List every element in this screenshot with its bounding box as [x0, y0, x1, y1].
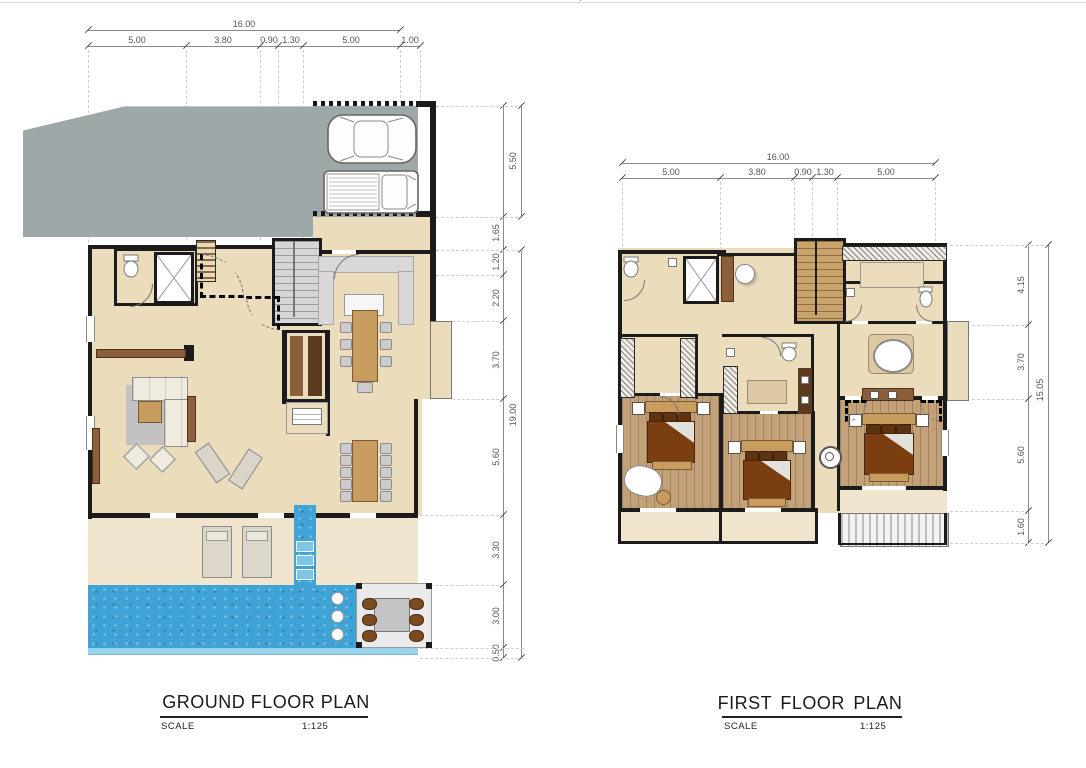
car-sedan-icon — [326, 112, 418, 166]
dimension-label: 5.00 — [662, 167, 680, 177]
dimension-label: 15.05 — [1035, 379, 1045, 402]
coffee-table — [138, 401, 162, 423]
elevator — [683, 256, 719, 304]
extension-line — [400, 50, 401, 103]
dimension-label: 5.00 — [128, 35, 146, 45]
title-underline — [722, 716, 902, 718]
deck-rail — [840, 543, 947, 545]
pool-step — [296, 569, 314, 580]
deck-post — [426, 583, 432, 589]
sun-lounger — [242, 526, 272, 578]
nightstand — [728, 441, 741, 454]
deck-post — [356, 583, 362, 589]
dimension-label: 0.50 — [491, 644, 501, 662]
stepping-stone — [331, 628, 344, 641]
sink — [801, 376, 809, 384]
wardrobe — [680, 338, 696, 398]
dimension-label: 1.60 — [1016, 518, 1026, 536]
car-pickup-icon — [322, 168, 420, 216]
plan-title: GROUND FLOOR PLAN — [162, 692, 370, 713]
dimension-label: 0.90 — [794, 167, 812, 177]
elevator — [154, 252, 194, 304]
scale-label: SCALE — [724, 721, 758, 732]
door-opening — [150, 513, 176, 518]
sofa — [132, 377, 188, 401]
pool-step — [296, 541, 314, 552]
pantry-cabinet — [290, 336, 303, 396]
dimension-label: 16.00 — [233, 19, 256, 29]
carport-edge-hatch — [313, 101, 432, 106]
bed — [864, 433, 914, 475]
dimension-label: 3.70 — [491, 351, 501, 369]
plan-title: FIRST FLOOR PLAN — [718, 693, 903, 714]
round-basin — [735, 264, 755, 284]
pantry-cabinet — [308, 336, 322, 396]
wall — [430, 217, 436, 321]
sun-lounger — [202, 526, 232, 578]
dining-table-8 — [352, 310, 378, 382]
closet — [721, 256, 734, 302]
dimension-label: 16.00 — [767, 152, 790, 162]
dim-line — [503, 106, 504, 658]
bed-bench — [869, 473, 909, 482]
closet-island — [860, 262, 924, 288]
side-table — [187, 396, 196, 442]
column-fixture — [819, 446, 842, 469]
stair-rail — [293, 241, 295, 317]
pool-edge — [88, 648, 418, 655]
toilet-icon — [622, 256, 640, 278]
bed-bench — [652, 461, 692, 470]
wardrobe — [723, 366, 738, 414]
sideboard — [96, 349, 186, 358]
dim-line — [88, 46, 420, 47]
dimension-label: 5.00 — [877, 167, 895, 177]
dimension-label: 3.00 — [491, 607, 501, 625]
nightstand — [632, 402, 645, 415]
dimension-label: 19.00 — [508, 404, 518, 427]
toilet-icon — [122, 254, 140, 278]
dimension-label: 5.60 — [491, 448, 501, 466]
pool-dining-table — [374, 598, 410, 632]
dim-line — [622, 178, 935, 179]
vanity-cabinet — [798, 368, 812, 414]
tv-bench-drawer — [888, 391, 897, 399]
column-fixture-inner — [825, 452, 834, 461]
toilet-icon — [780, 342, 798, 362]
dim-line — [622, 163, 935, 164]
nightstand — [793, 441, 806, 454]
lounger-pillow — [206, 531, 228, 541]
sofa — [164, 399, 188, 447]
tv-bench-drawer — [870, 391, 879, 399]
dimension-label: 1.00 — [401, 35, 419, 45]
slab-notch — [422, 399, 436, 515]
deck-post — [356, 642, 362, 648]
window — [86, 316, 95, 342]
side-table — [656, 490, 671, 505]
dim-line — [521, 250, 522, 658]
bath-rug — [747, 380, 787, 404]
bed — [743, 460, 791, 500]
floor-plan-sheet: 16.00 5.00 3.80 0.90 1.30 5.00 1.00 5.50… — [0, 0, 1086, 768]
console — [92, 428, 100, 484]
bed-bench — [748, 498, 786, 507]
dimension-label: 3.80 — [748, 167, 766, 177]
carport-wall — [430, 101, 436, 217]
staircase — [794, 238, 846, 324]
balcony — [840, 489, 947, 513]
dim-line — [1048, 245, 1049, 543]
sink — [668, 258, 677, 267]
tv-cabinet — [292, 408, 322, 425]
sink — [726, 348, 735, 357]
dimension-label: 3.30 — [491, 541, 501, 559]
dimension-label: 5.00 — [342, 35, 360, 45]
window — [616, 425, 624, 453]
dimension-label: 1.20 — [491, 253, 501, 271]
dimension-label: 3.70 — [1016, 353, 1026, 371]
dimension-label: 3.80 — [214, 35, 232, 45]
scale-value: 1:125 — [860, 721, 886, 732]
sink — [846, 288, 855, 297]
extension-line — [420, 50, 421, 103]
balcony — [618, 511, 817, 543]
window — [941, 430, 949, 456]
lounger-pillow — [246, 531, 268, 541]
pool-step — [296, 555, 314, 566]
scale-value: 1:125 — [302, 721, 328, 732]
wall — [414, 399, 418, 515]
bay-window — [947, 321, 969, 401]
sink — [801, 396, 809, 404]
dimension-label: 5.60 — [1016, 446, 1026, 464]
kitchen-counter — [318, 271, 334, 325]
sun-deck — [840, 513, 949, 547]
dim-line — [1028, 245, 1029, 543]
kitchen-counter — [398, 271, 414, 325]
stepping-stone — [331, 592, 344, 605]
deck-post — [426, 642, 432, 648]
dim-line — [521, 106, 522, 217]
nightstand — [697, 402, 710, 415]
title-underline — [160, 716, 368, 718]
door-opening — [258, 513, 284, 518]
bay-window — [430, 321, 452, 399]
stair-rail — [815, 241, 817, 315]
dimension-label: 1.30 — [816, 167, 834, 177]
scale-label: SCALE — [161, 721, 195, 732]
dimension-label: 5.50 — [508, 152, 518, 170]
dimension-label: 0.90 — [260, 35, 278, 45]
wardrobe — [842, 246, 947, 261]
wardrobe — [620, 338, 635, 398]
bathtub — [873, 339, 913, 373]
door-opening — [350, 513, 376, 518]
dim-line — [88, 30, 400, 31]
door-opening — [332, 250, 356, 254]
balcony-rail — [618, 541, 818, 544]
dimension-label: 1.30 — [282, 35, 300, 45]
dining-table-10 — [352, 440, 378, 502]
dimension-label: 1.65 — [491, 224, 501, 242]
stepping-stone — [331, 610, 344, 623]
sheet-top-border — [0, 2, 1086, 3]
dimension-label: 2.20 — [491, 289, 501, 307]
dim-tick — [397, 26, 404, 33]
dimension-label: 4.15 — [1016, 276, 1026, 294]
bed — [647, 421, 695, 463]
